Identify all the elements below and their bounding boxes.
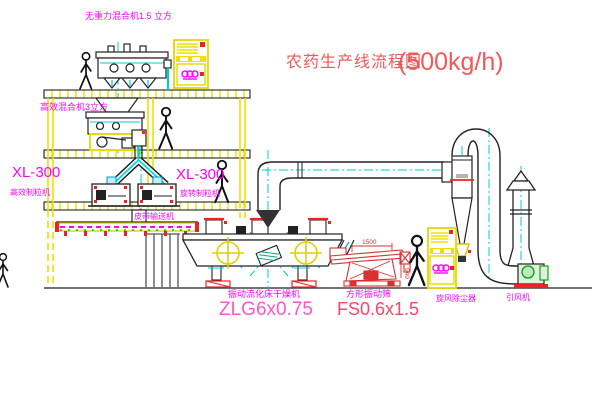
control-cabinet-ground <box>428 228 456 288</box>
flow-diagram: 无重力混合机1.5 立方 农药生产线流程图 (500kg/h) 高效混合机3立方… <box>0 0 600 403</box>
granulator-right-label: 旋转制粒机 <box>180 188 220 198</box>
person-figure <box>0 254 8 287</box>
person-figure <box>159 108 172 149</box>
mid-mixer-label: 高效混合机3立方 <box>40 101 108 112</box>
person-figure <box>80 53 91 89</box>
dryer-label: 振动流化床干燥机 <box>228 288 300 299</box>
granulator-left-label: 高效制粒机 <box>10 187 50 197</box>
granulator-model-left: XL-300 <box>12 164 60 181</box>
sieve-dim-length: 1500 <box>362 239 377 246</box>
vibrating-sieve <box>330 243 410 286</box>
sieve-model-label: FS0.6x1.5 <box>337 299 419 319</box>
conveyor-support <box>144 234 180 287</box>
main-exhaust-duct <box>256 162 444 228</box>
granulator-right-unit <box>138 177 176 206</box>
sieve-label: 方形振动筛 <box>346 288 391 299</box>
page-title-capacity: (500kg/h) <box>398 48 504 76</box>
indicator-light-icon <box>200 42 205 47</box>
diagram-canvas: 无重力混合机1.5 立方 农药生产线流程图 (500kg/h) 高效混合机3立方… <box>0 0 600 403</box>
fan-label: 引风机 <box>506 292 530 302</box>
sieve-dim-height: 940 <box>403 268 410 279</box>
belt-conveyor-label: 皮带输送机 <box>134 211 174 221</box>
indicator-light-icon <box>449 230 453 234</box>
person-figure <box>409 236 424 285</box>
granulator-left-unit <box>92 177 130 206</box>
gravity-free-mixer <box>96 44 171 90</box>
top-mixer-label: 无重力混合机1.5 立方 <box>85 10 172 21</box>
control-cabinet-top <box>174 40 208 88</box>
dryer-model-label: ZLG6x0.75 <box>219 299 313 320</box>
stack-cap-icon <box>514 171 528 181</box>
induced-draft-fan <box>514 264 548 288</box>
granulator-model-right: XL-300 <box>176 166 224 183</box>
cyclone-label: 旋风除尘器 <box>436 293 476 303</box>
